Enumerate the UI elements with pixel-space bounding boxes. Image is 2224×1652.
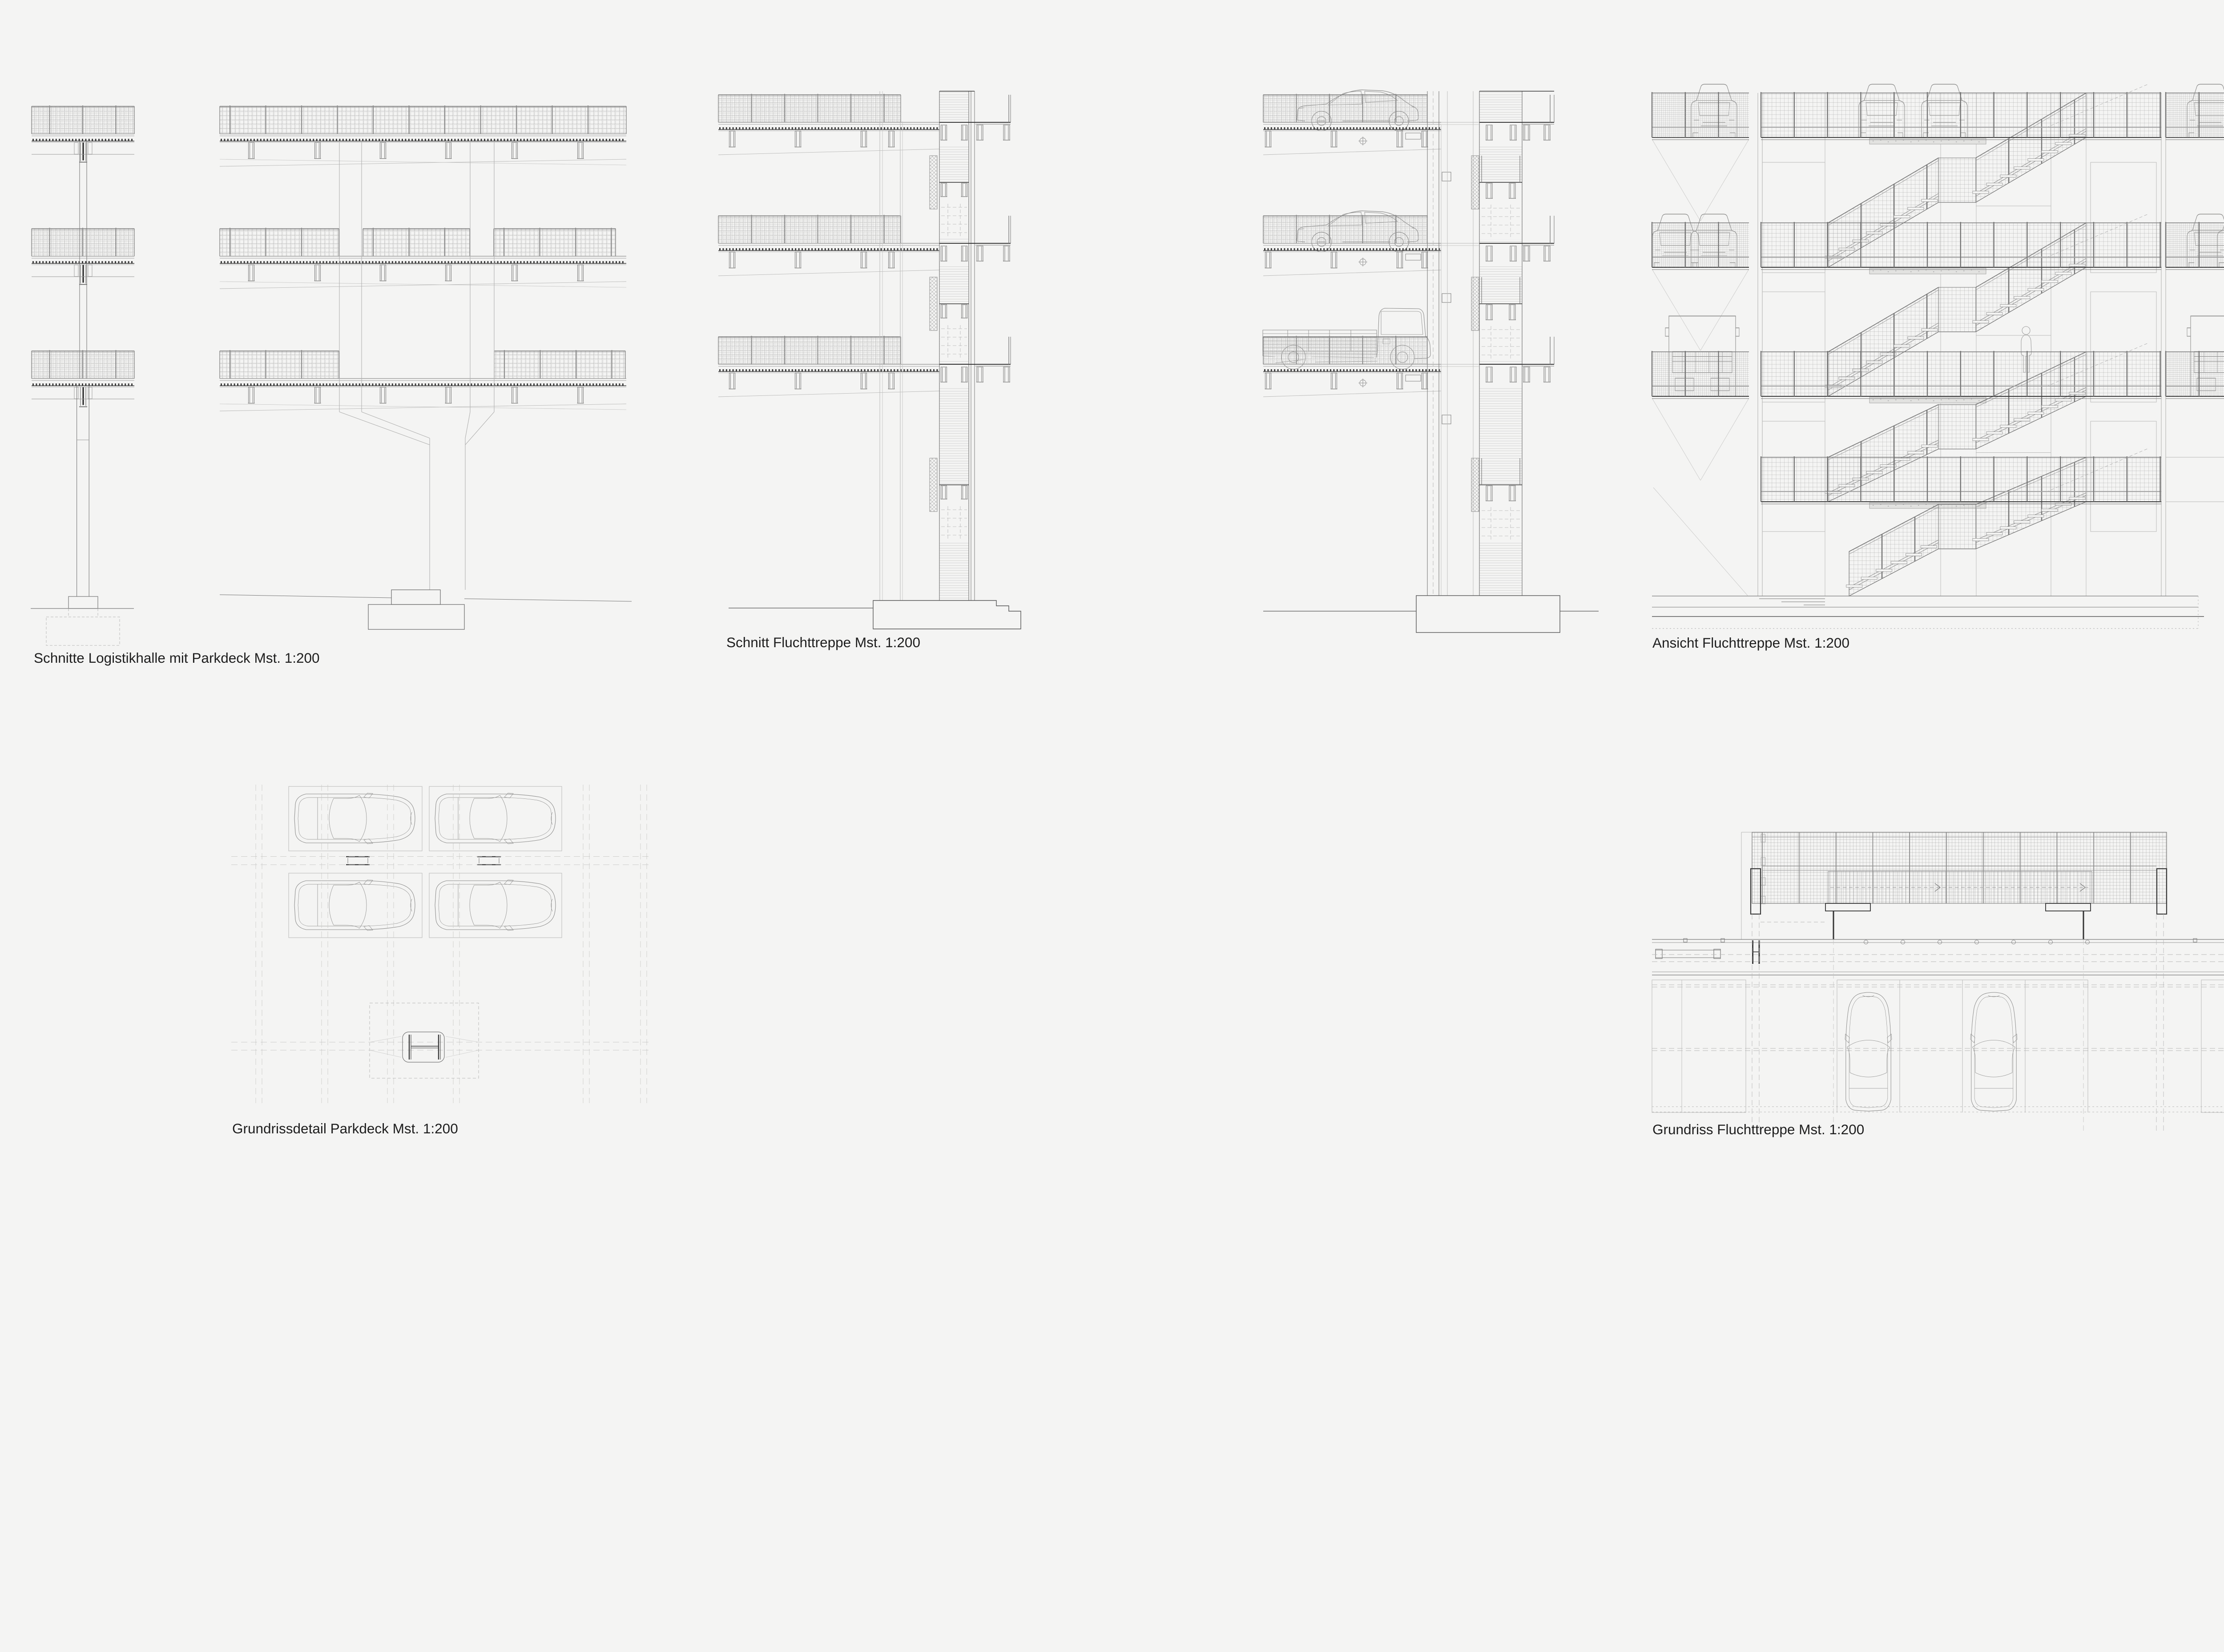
svg-text:Grundriss Fluchttreppe Mst. 1:: Grundriss Fluchttreppe Mst. 1:200 — [1652, 1121, 1864, 1137]
svg-text:Grundrissdetail Parkdeck Mst.: Grundrissdetail Parkdeck Mst. 1:200 — [232, 1120, 458, 1136]
svg-text:Ansicht Fluchttreppe Mst. 1:20: Ansicht Fluchttreppe Mst. 1:200 — [1652, 635, 1849, 651]
svg-text:Schnitt Fluchttreppe Mst. 1:20: Schnitt Fluchttreppe Mst. 1:200 — [726, 634, 920, 650]
svg-text:Schnitte Logistikhalle mit Par: Schnitte Logistikhalle mit Parkdeck Mst.… — [34, 650, 320, 666]
